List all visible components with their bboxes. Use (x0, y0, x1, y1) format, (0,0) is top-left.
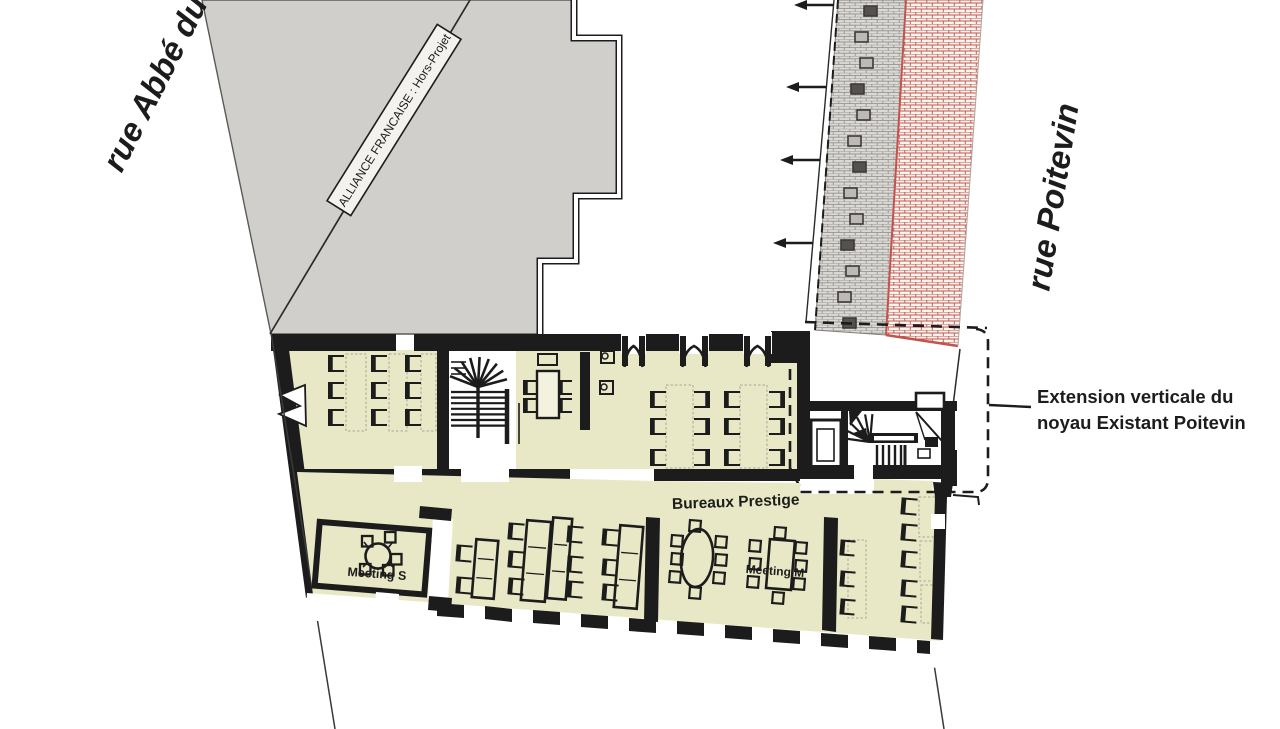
svg-text:noyau Existant Poitevin: noyau Existant Poitevin (1037, 412, 1246, 433)
svg-text:Extension verticale du: Extension verticale du (1037, 386, 1233, 407)
